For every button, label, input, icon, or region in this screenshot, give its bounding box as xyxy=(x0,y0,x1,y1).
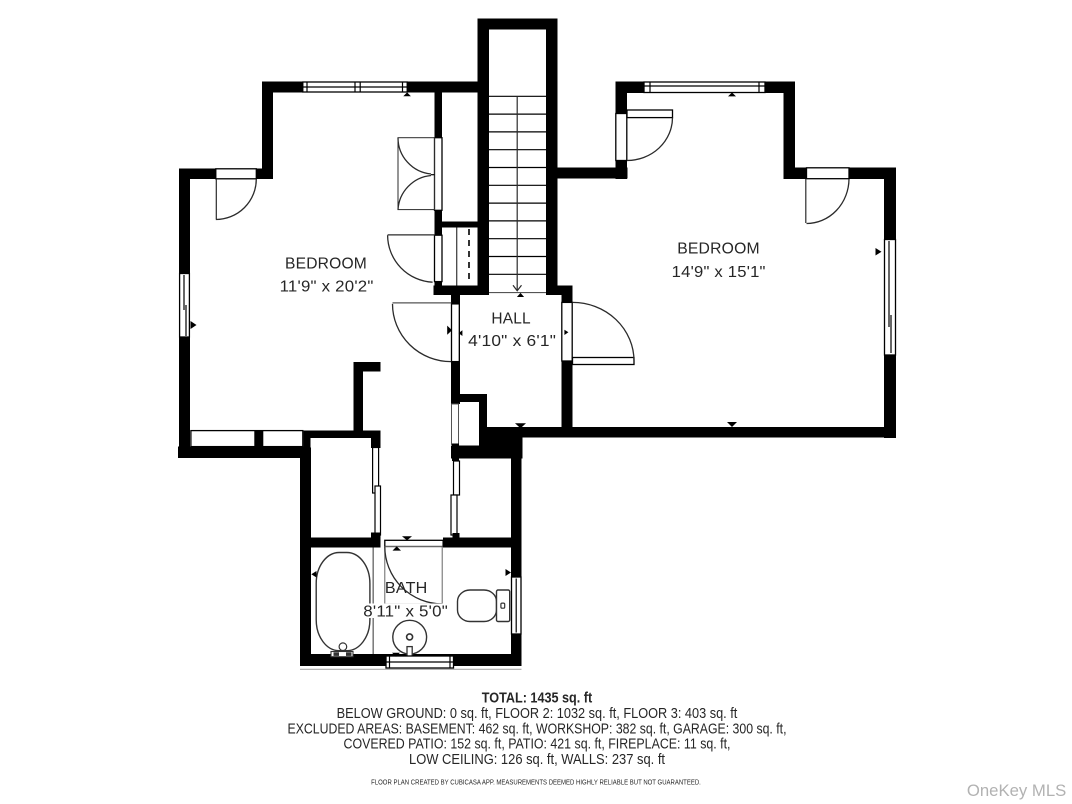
svg-text:14'9" x 15'1": 14'9" x 15'1" xyxy=(672,264,766,281)
svg-text:FLOOR PLAN CREATED BY CUBICASA: FLOOR PLAN CREATED BY CUBICASA APP. MEAS… xyxy=(371,780,701,787)
svg-text:8'11" x 5'0": 8'11" x 5'0" xyxy=(363,604,448,621)
svg-text:BELOW GROUND: 0 sq. ft, FLOOR: BELOW GROUND: 0 sq. ft, FLOOR 2: 1032 sq… xyxy=(337,706,738,722)
svg-text:TOTAL: 1435 sq. ft: TOTAL: 1435 sq. ft xyxy=(482,691,593,707)
svg-text:COVERED PATIO: 152 sq. ft, PAT: COVERED PATIO: 152 sq. ft, PATIO: 421 sq… xyxy=(344,737,731,753)
svg-text:HALL: HALL xyxy=(491,311,531,328)
svg-text:LOW CEILING: 126 sq. ft, WALLS: LOW CEILING: 126 sq. ft, WALLS: 237 sq. … xyxy=(409,752,665,768)
svg-text:BEDROOM: BEDROOM xyxy=(677,241,760,258)
svg-text:4'10" x 6'1": 4'10" x 6'1" xyxy=(468,333,556,350)
svg-text:EXCLUDED AREAS: BASEMENT: 462: EXCLUDED AREAS: BASEMENT: 462 sq. ft, WO… xyxy=(288,721,787,737)
svg-text:BEDROOM: BEDROOM xyxy=(285,256,367,273)
svg-text:OneKey MLS: OneKey MLS xyxy=(967,781,1066,800)
svg-text:BATH: BATH xyxy=(385,580,428,597)
svg-text:11'9" x 20'2": 11'9" x 20'2" xyxy=(280,279,374,296)
